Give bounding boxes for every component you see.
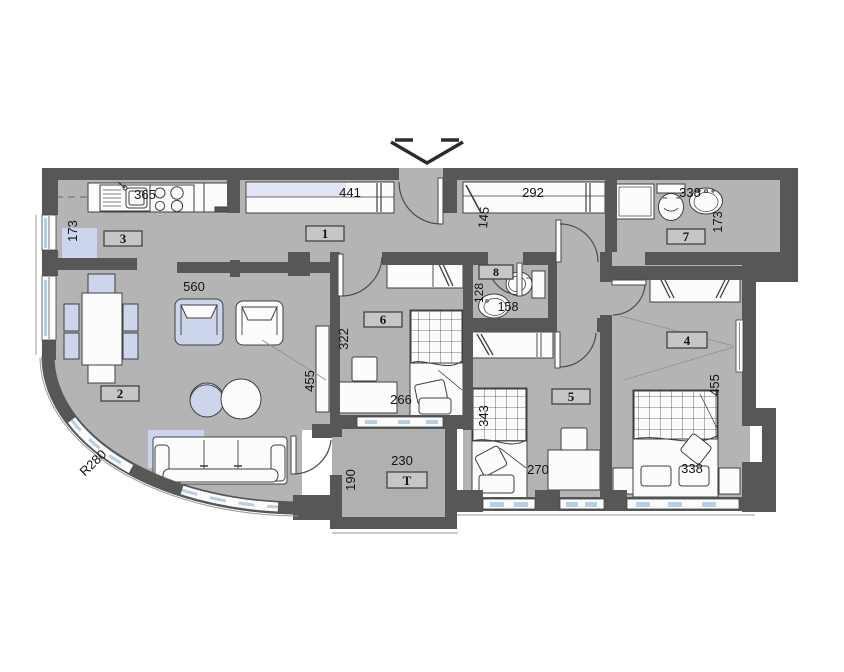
dim-corridor-wardrobe: 292	[522, 185, 544, 200]
dim-bedroom6-desk: 266	[390, 392, 412, 407]
wall	[645, 252, 780, 265]
room-box-wc: 8	[479, 265, 513, 279]
dim-bathroom-width: 338	[679, 185, 701, 200]
dim-wc-depth: 158	[498, 300, 519, 314]
wall	[742, 282, 756, 412]
wall	[605, 168, 617, 252]
window-bedroom6	[357, 417, 443, 427]
wall	[288, 262, 340, 273]
wall	[293, 495, 330, 520]
floor-plan-drawing: 3 2 1 6 8 7 5 4	[0, 0, 844, 672]
room-number-hall: 1	[322, 226, 329, 241]
room-number-bedroom4: 4	[684, 333, 691, 348]
bed-bedroom4	[633, 390, 718, 497]
room-box-hall: 1	[306, 226, 344, 241]
dim-bedroom6-height: 322	[336, 328, 351, 350]
room-number-bedroom5: 5	[568, 389, 575, 404]
bed-bedroom6	[410, 310, 463, 416]
wall	[535, 490, 560, 511]
wall	[42, 168, 399, 180]
dim-bathroom-depth: 173	[710, 211, 725, 233]
wall	[58, 258, 137, 270]
window-bedroom5-left	[483, 499, 535, 509]
wall	[600, 252, 612, 282]
window-bedroom4	[627, 499, 739, 509]
wall	[600, 315, 612, 497]
floor-plan: 3 2 1 6 8 7 5 4	[0, 0, 844, 672]
room-box-bedroom6: 6	[364, 312, 402, 327]
dim-terrace-depth: 190	[343, 469, 358, 491]
room-box-bedroom4: 4	[667, 332, 707, 348]
entrance-arrow-icon	[391, 140, 463, 163]
armchair-blue	[175, 299, 223, 345]
wall	[227, 168, 240, 213]
dim-kitchen-depth: 173	[65, 220, 80, 242]
room-number-terrace: T	[403, 473, 412, 488]
room-number-bathroom: 7	[683, 229, 690, 244]
room-number-bedroom6: 6	[380, 312, 387, 327]
wall	[312, 424, 332, 438]
dim-wc-width: 128	[472, 283, 486, 303]
dim-kitchen-width: 365	[134, 187, 156, 202]
wall	[42, 250, 58, 276]
wall	[443, 168, 457, 213]
kitchen-counter	[88, 182, 238, 212]
stove-icon	[150, 185, 194, 212]
dim-bedroom5-bed: 343	[476, 405, 491, 427]
wall	[463, 252, 473, 430]
window-bedroom5-right	[560, 499, 604, 509]
dim-living-height: 455	[302, 370, 317, 392]
wall	[742, 408, 776, 426]
window-bedroom4-side	[736, 320, 743, 372]
tv-stand	[316, 326, 329, 412]
wardrobe-bedroom5	[472, 332, 553, 358]
wall	[177, 262, 288, 273]
dim-bedroom4-width: 338	[681, 461, 703, 476]
wall	[612, 266, 742, 280]
dim-terrace-width: 230	[391, 453, 413, 468]
room-box-living: 2	[101, 386, 139, 401]
room-box-kitchen: 3	[104, 231, 142, 246]
dim-living-width: 560	[183, 279, 205, 294]
room-box-terrace: T	[387, 472, 427, 488]
hall-wardrobe	[246, 182, 394, 213]
terrace-wall	[330, 517, 457, 529]
wall	[42, 168, 58, 215]
dim-bedroom5-width: 270	[527, 462, 549, 477]
room-number-kitchen: 3	[120, 231, 127, 246]
sofa	[153, 437, 287, 484]
window-left-upper	[42, 215, 56, 250]
dim-bedroom4-height: 455	[707, 374, 722, 396]
wall	[762, 426, 776, 466]
window-left-lower	[42, 276, 56, 340]
room-number-living: 2	[117, 386, 124, 401]
nightstand-right-bedroom4	[719, 468, 740, 494]
washing-machine-icon	[616, 184, 654, 219]
room-box-bedroom5: 5	[552, 389, 590, 404]
room-box-bathroom: 7	[667, 229, 705, 244]
armchair-white	[236, 301, 283, 345]
terrace-wall	[445, 427, 457, 529]
wall	[463, 318, 557, 332]
bed-bedroom5	[472, 388, 527, 498]
dim-hall-depth: 145	[475, 206, 492, 229]
room-number-wc: 8	[493, 265, 499, 279]
dim-hall-wardrobe: 441	[339, 185, 361, 200]
